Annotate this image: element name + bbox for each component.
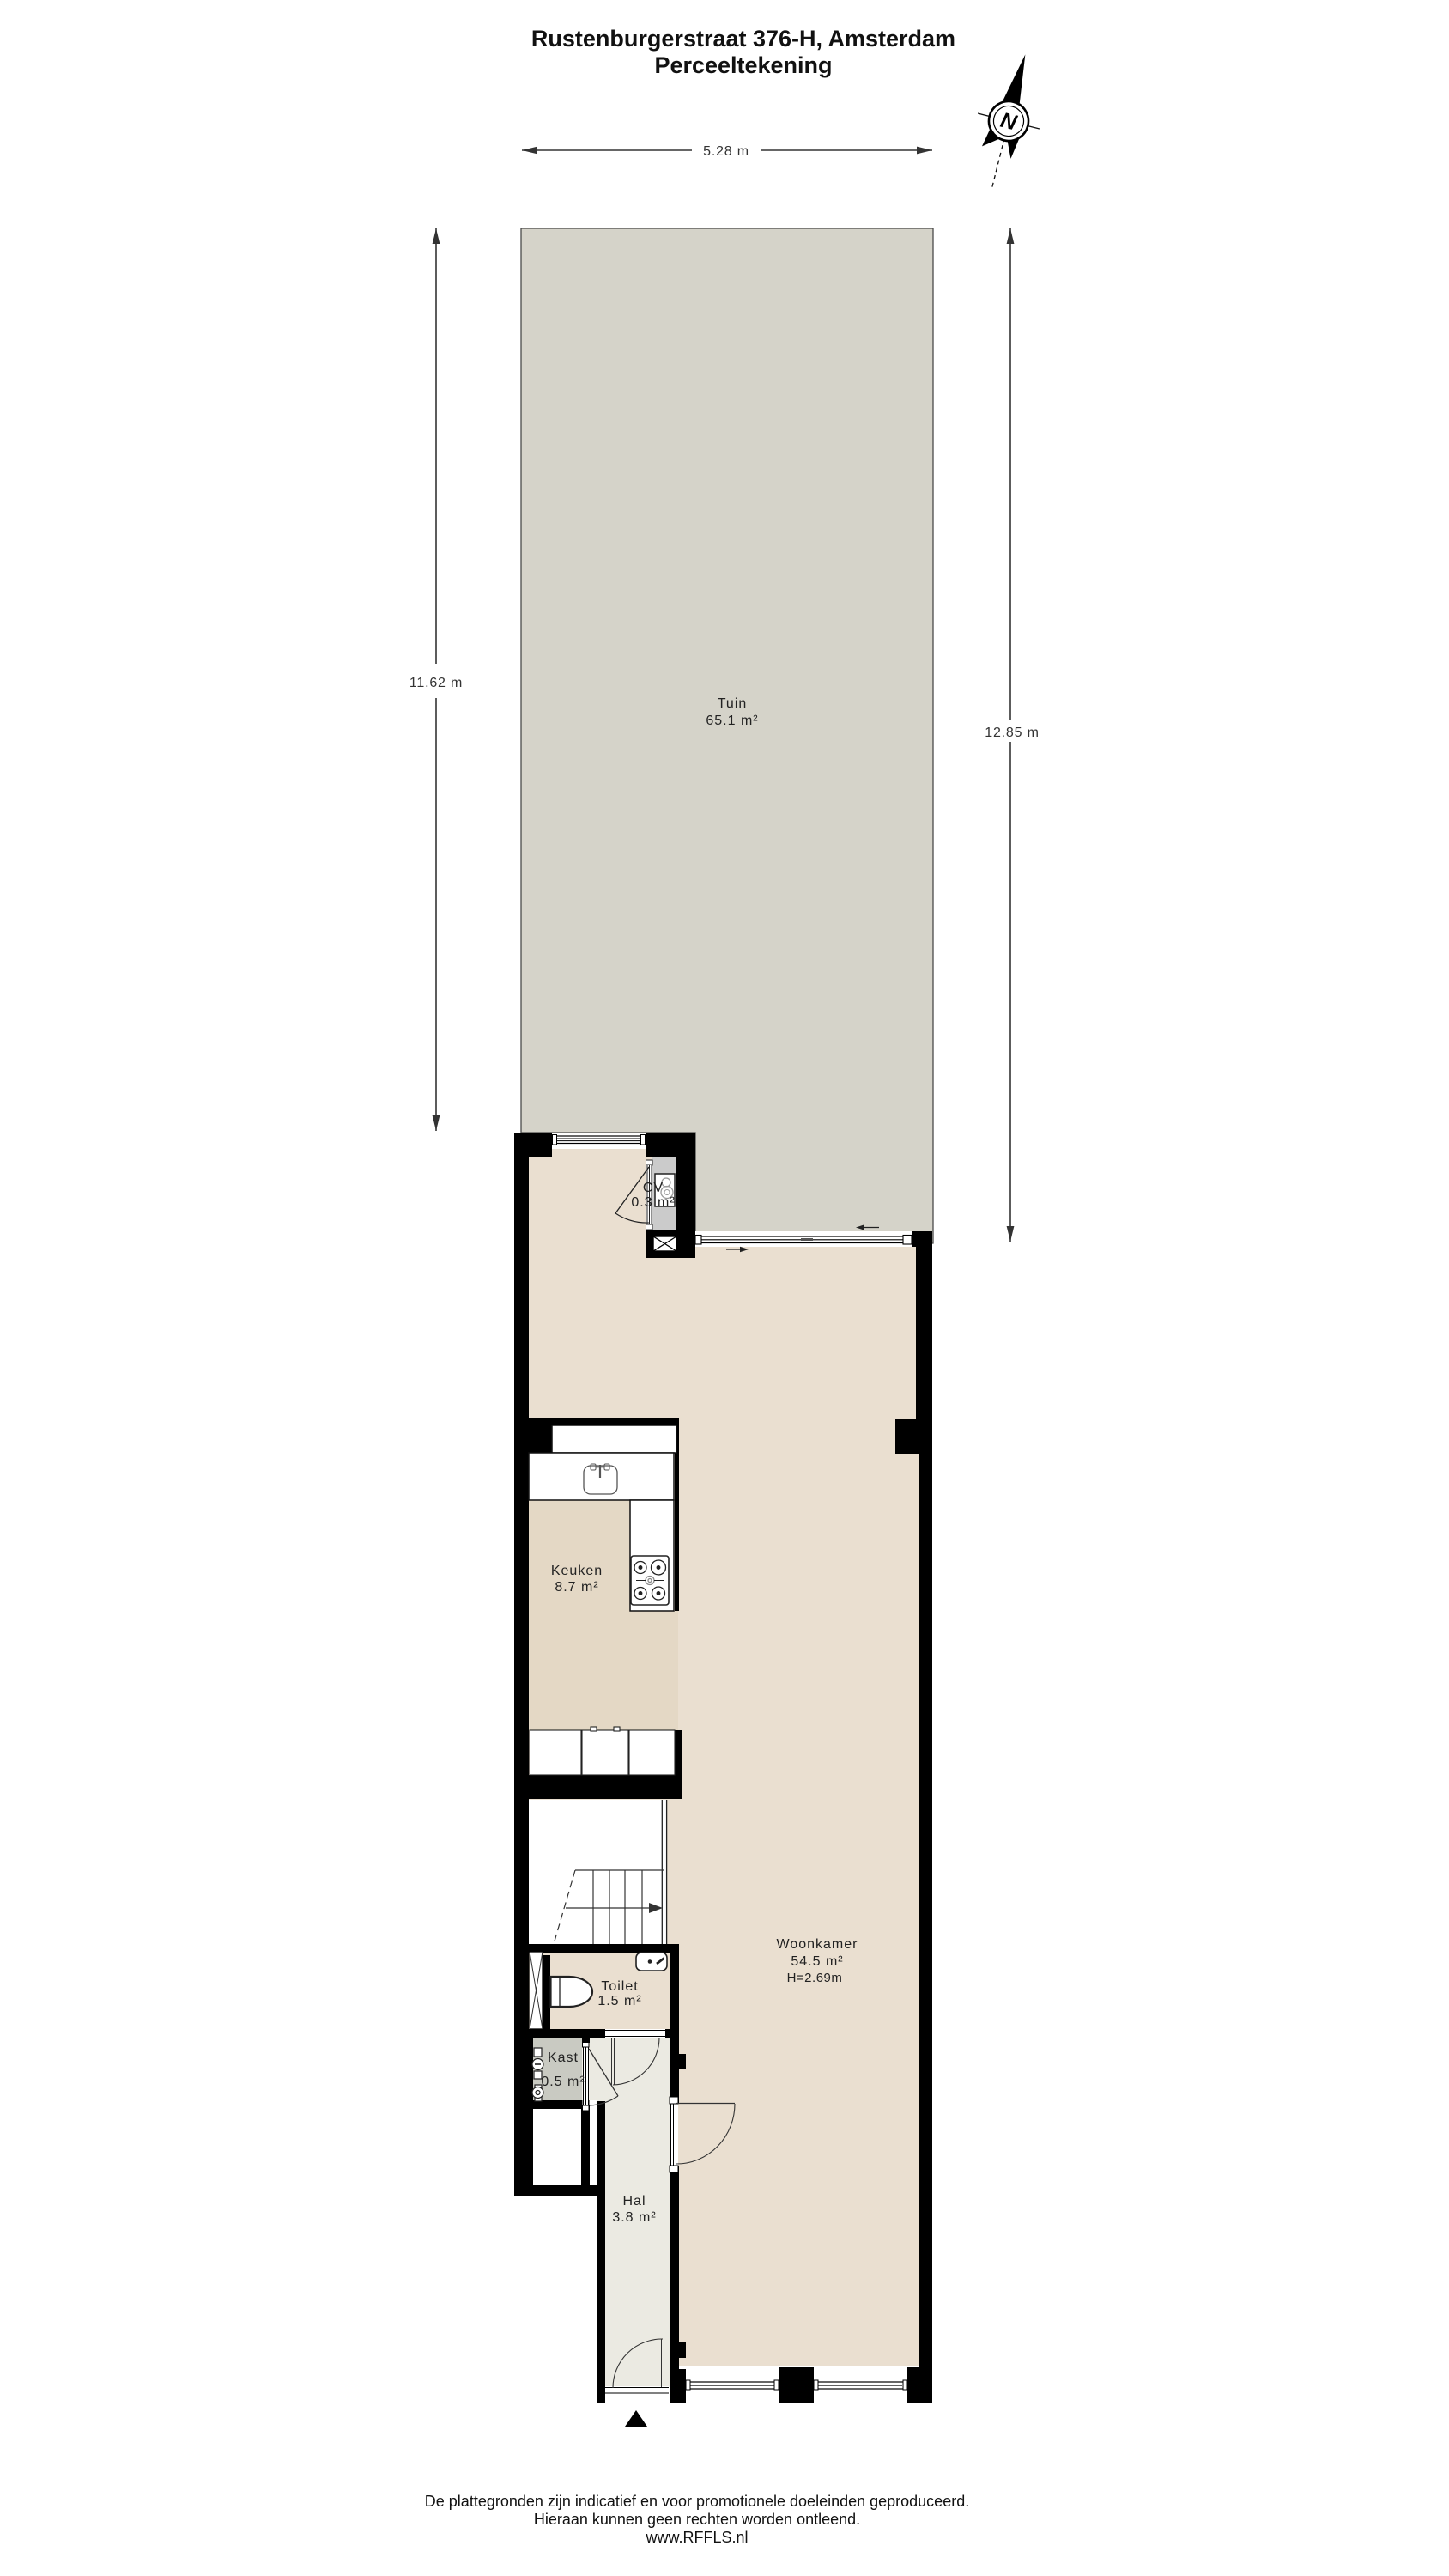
svg-text:Perceeltekening: Perceeltekening xyxy=(654,52,832,78)
svg-text:Woonkamer: Woonkamer xyxy=(777,1937,858,1952)
svg-text:1.5 m²: 1.5 m² xyxy=(597,1994,641,2008)
svg-text:De plattegronden zijn indicati: De plattegronden zijn indicatief en voor… xyxy=(425,2493,969,2510)
svg-text:Hal: Hal xyxy=(622,2194,646,2208)
svg-text:54.5 m²: 54.5 m² xyxy=(791,1954,843,1969)
svg-text:Keuken: Keuken xyxy=(551,1564,603,1578)
svg-text:5.28 m: 5.28 m xyxy=(703,144,749,159)
svg-text:Toilet: Toilet xyxy=(601,1979,638,1994)
svg-text:3.8 m²: 3.8 m² xyxy=(612,2210,656,2225)
svg-text:www.RFFLS.nl: www.RFFLS.nl xyxy=(645,2529,748,2546)
svg-text:65.1 m²: 65.1 m² xyxy=(706,714,758,728)
svg-text:11.62 m: 11.62 m xyxy=(409,676,463,690)
svg-text:Rustenburgerstraat 376-H, Amst: Rustenburgerstraat 376-H, Amsterdam xyxy=(531,26,955,52)
svg-text:12.85 m: 12.85 m xyxy=(985,726,1039,740)
svg-text:0.3 m²: 0.3 m² xyxy=(631,1195,675,1210)
svg-text:Kast: Kast xyxy=(548,2050,579,2065)
svg-text:CV: CV xyxy=(643,1181,664,1195)
svg-text:Tuin: Tuin xyxy=(718,696,748,711)
svg-text:0.5 m²: 0.5 m² xyxy=(541,2075,585,2089)
svg-text:8.7 m²: 8.7 m² xyxy=(555,1580,598,1595)
svg-text:H=2.69m: H=2.69m xyxy=(787,1971,843,1985)
svg-text:Hieraan kunnen geen rechten wo: Hieraan kunnen geen rechten worden ontle… xyxy=(534,2511,860,2528)
